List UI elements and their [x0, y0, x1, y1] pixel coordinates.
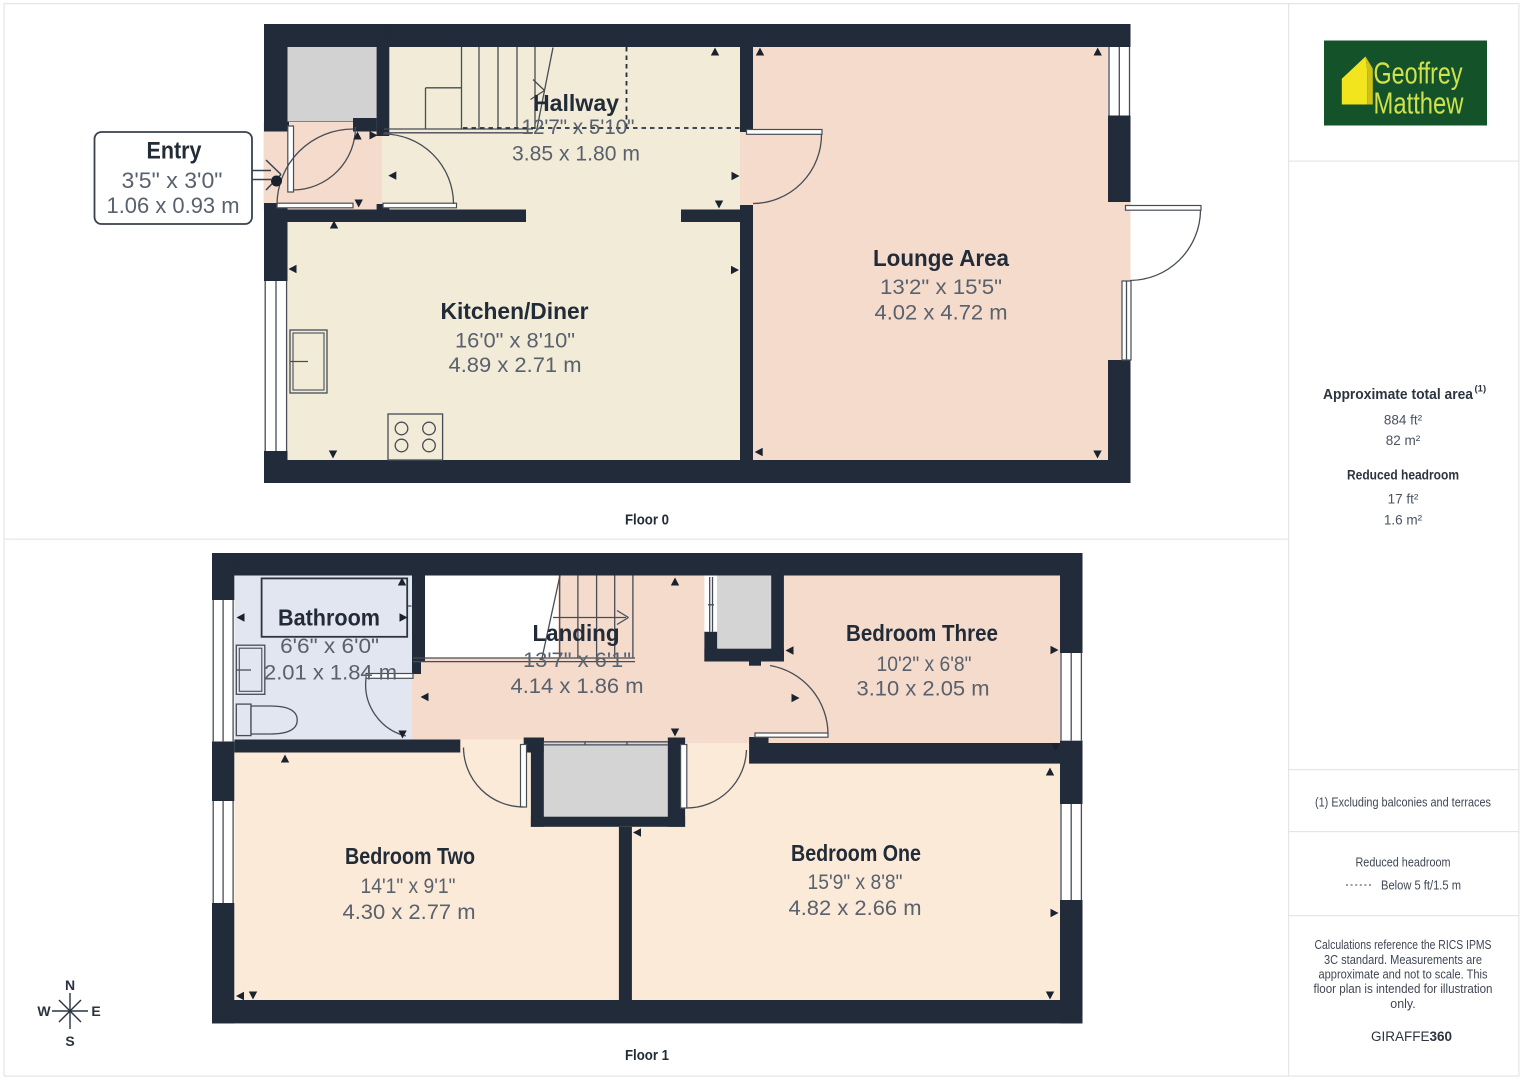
svg-text:Calculations reference the RIC: Calculations reference the RICS IPMS — [1315, 938, 1492, 952]
svg-text:1.06 x 0.93 m: 1.06 x 0.93 m — [107, 193, 240, 218]
svg-text:Bedroom Two: Bedroom Two — [345, 843, 475, 869]
svg-text:13'2" x 15'5": 13'2" x 15'5" — [880, 276, 1002, 299]
svg-text:4.02 x 4.72 m: 4.02 x 4.72 m — [875, 302, 1008, 325]
svg-text:6'6" x 6'0": 6'6" x 6'0" — [280, 635, 379, 658]
svg-text:Entry: Entry — [147, 138, 203, 165]
svg-text:floor plan is intended for ill: floor plan is intended for illustration — [1314, 982, 1493, 996]
svg-text:(1): (1) — [1475, 384, 1487, 395]
svg-text:3.85 x 1.80 m: 3.85 x 1.80 m — [512, 143, 640, 166]
svg-text:Landing: Landing — [533, 620, 620, 646]
svg-text:GIRAFFE360: GIRAFFE360 — [1371, 1029, 1452, 1044]
svg-text:Kitchen/Diner: Kitchen/Diner — [441, 298, 589, 324]
svg-text:1.6 m²: 1.6 m² — [1384, 513, 1423, 528]
svg-text:Floor 0: Floor 0 — [625, 512, 669, 529]
svg-text:17 ft²: 17 ft² — [1388, 492, 1419, 507]
svg-text:2.01 x 1.84 m: 2.01 x 1.84 m — [264, 662, 397, 685]
svg-text:approximate and not to scale.: approximate and not to scale. This — [1319, 968, 1488, 982]
svg-text:Approximate total area: Approximate total area — [1323, 386, 1474, 403]
svg-text:10'2" x 6'8": 10'2" x 6'8" — [877, 653, 972, 676]
svg-text:16'0" x 8'10": 16'0" x 8'10" — [455, 330, 575, 353]
svg-text:S: S — [65, 1033, 74, 1049]
svg-text:12'7" x 5'10": 12'7" x 5'10" — [522, 116, 635, 139]
svg-text:82 m²: 82 m² — [1386, 433, 1421, 448]
svg-text:(1) Excluding balconies and te: (1) Excluding balconies and terraces — [1315, 796, 1491, 810]
svg-text:Bedroom One: Bedroom One — [791, 840, 921, 866]
svg-text:Below 5 ft/1.5 m: Below 5 ft/1.5 m — [1381, 879, 1461, 893]
svg-text:14'1" x 9'1": 14'1" x 9'1" — [361, 875, 456, 898]
svg-text:only.: only. — [1390, 997, 1415, 1011]
svg-text:N: N — [65, 977, 75, 993]
svg-text:Bathroom: Bathroom — [278, 605, 380, 631]
svg-text:13'7" x 6'1": 13'7" x 6'1" — [523, 649, 631, 672]
svg-text:W: W — [37, 1003, 51, 1019]
svg-text:Lounge Area: Lounge Area — [873, 245, 1009, 271]
svg-text:3'5" x 3'0": 3'5" x 3'0" — [122, 168, 223, 193]
svg-text:Reduced headroom: Reduced headroom — [1347, 468, 1459, 483]
svg-text:Hallway: Hallway — [533, 90, 619, 116]
svg-text:Floor 1: Floor 1 — [625, 1047, 669, 1064]
svg-text:4.14 x 1.86 m: 4.14 x 1.86 m — [511, 675, 644, 698]
svg-text:3.10 x 2.05 m: 3.10 x 2.05 m — [857, 678, 990, 701]
svg-text:Bedroom Three: Bedroom Three — [846, 620, 998, 646]
svg-text:4.30 x 2.77 m: 4.30 x 2.77 m — [343, 901, 476, 924]
svg-text:Matthew: Matthew — [1374, 86, 1464, 121]
svg-text:4.82 x 2.66 m: 4.82 x 2.66 m — [789, 897, 922, 920]
svg-text:884 ft²: 884 ft² — [1384, 413, 1423, 428]
svg-text:Reduced headroom: Reduced headroom — [1356, 856, 1451, 870]
svg-text:4.89 x 2.71 m: 4.89 x 2.71 m — [449, 354, 582, 377]
svg-text:15'9" x 8'8": 15'9" x 8'8" — [808, 871, 903, 894]
svg-text:3C standard. Measurements are: 3C standard. Measurements are — [1324, 953, 1482, 967]
svg-text:E: E — [91, 1003, 100, 1019]
